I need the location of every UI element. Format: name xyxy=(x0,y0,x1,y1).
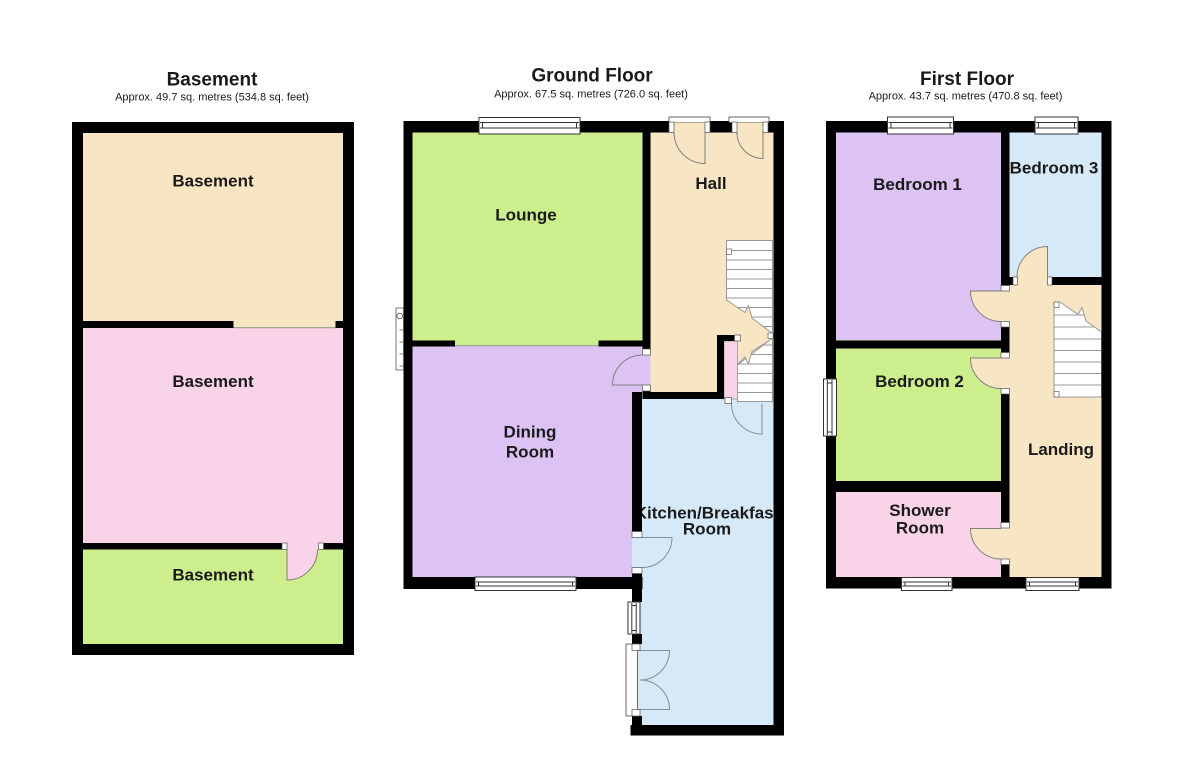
svg-text:Lounge: Lounge xyxy=(495,206,556,225)
svg-text:Ground Floor: Ground Floor xyxy=(531,66,653,87)
svg-text:Dining: Dining xyxy=(504,423,557,442)
svg-text:Bedroom 1: Bedroom 1 xyxy=(873,175,962,194)
svg-text:Room: Room xyxy=(896,519,944,538)
svg-text:Basement: Basement xyxy=(172,372,254,391)
svg-text:Hall: Hall xyxy=(695,174,726,193)
svg-text:Room: Room xyxy=(506,443,554,462)
svg-text:Bedroom 3: Bedroom 3 xyxy=(1010,159,1099,178)
svg-text:Room: Room xyxy=(683,520,731,539)
svg-text:Basement: Basement xyxy=(172,566,254,585)
svg-text:Landing: Landing xyxy=(1028,440,1094,459)
svg-text:Approx. 67.5 sq. metres (726.0: Approx. 67.5 sq. metres (726.0 sq. feet) xyxy=(494,89,688,101)
svg-text:Basement: Basement xyxy=(172,172,254,191)
svg-text:Approx. 43.7 sq. metres (470.8: Approx. 43.7 sq. metres (470.8 sq. feet) xyxy=(869,91,1063,103)
svg-text:First Floor: First Floor xyxy=(920,69,1015,90)
svg-text:Bedroom 2: Bedroom 2 xyxy=(875,372,964,391)
svg-text:Approx. 49.7 sq. metres (534.8: Approx. 49.7 sq. metres (534.8 sq. feet) xyxy=(115,92,309,104)
svg-text:Basement: Basement xyxy=(167,70,258,91)
svg-text:Shower: Shower xyxy=(889,501,951,520)
